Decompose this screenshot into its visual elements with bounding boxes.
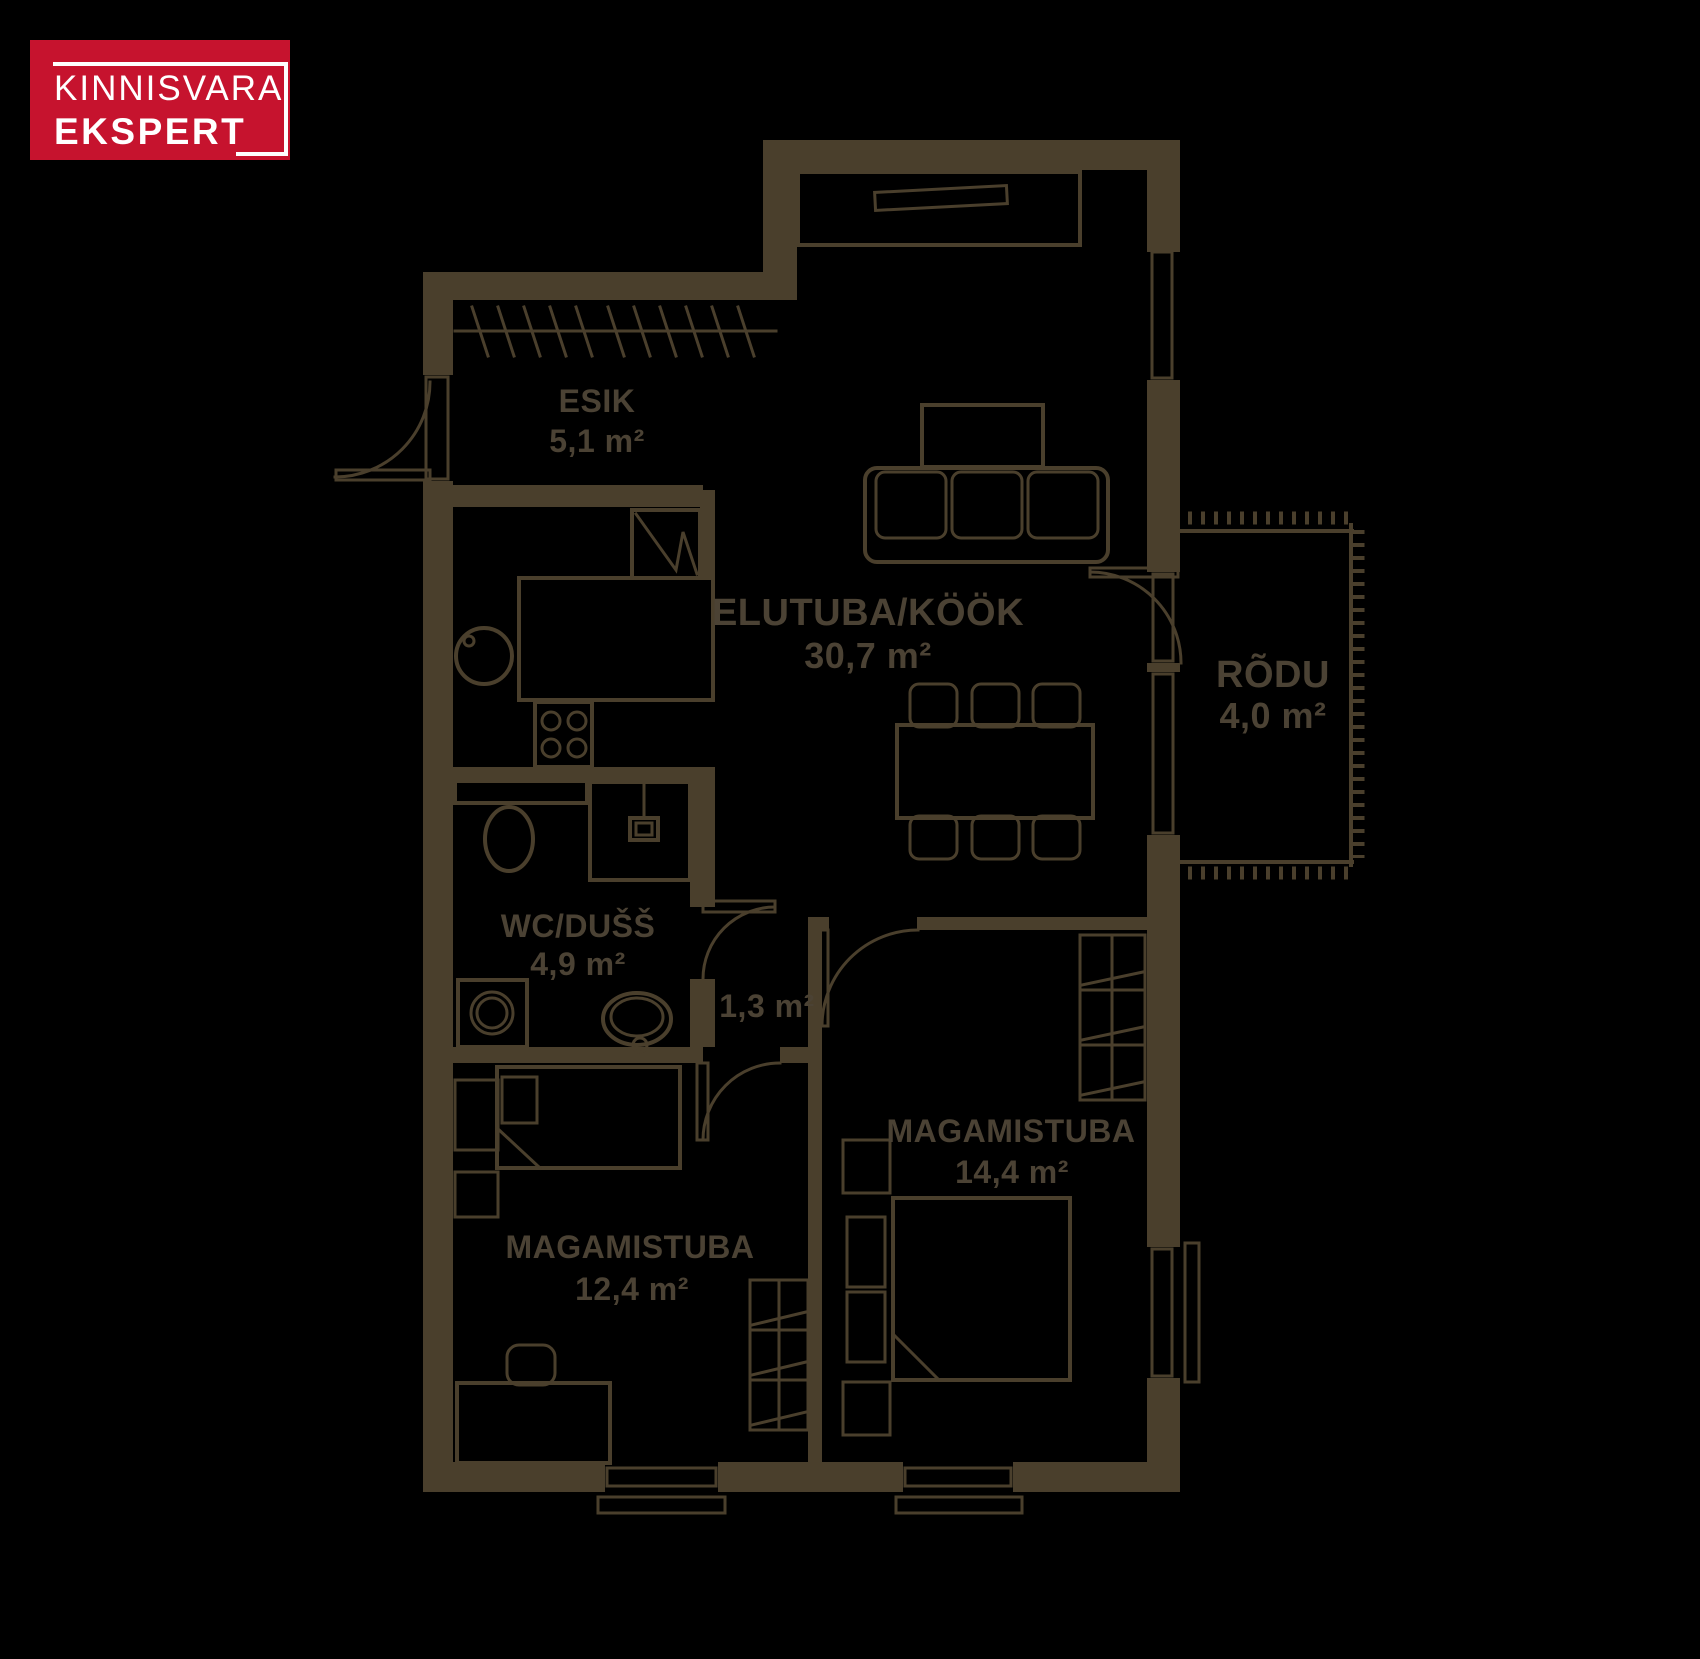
room-name-esik: ESIK xyxy=(559,383,636,419)
wall-living-bedroom1 xyxy=(917,917,1147,930)
room-area-elutuba: 30,7 m² xyxy=(804,635,932,676)
chair xyxy=(910,816,957,859)
chair xyxy=(972,816,1019,859)
logo-line2: EKSPERT xyxy=(54,111,246,152)
coffee-table xyxy=(922,405,1043,467)
wall-esik-kitchen xyxy=(423,485,703,507)
wall-wc-right-lower xyxy=(690,979,715,1047)
room-area-esik: 5,1 m² xyxy=(549,423,644,459)
logo-line1: KINNISVARA xyxy=(54,69,283,108)
window-bedroom1-bottom xyxy=(905,1468,1011,1486)
pillow xyxy=(502,1077,537,1123)
wall-top-living xyxy=(763,140,1177,170)
room-name-rodu: RÕDU xyxy=(1216,652,1330,696)
kitchen-counter xyxy=(519,578,713,700)
room-area-koridor: 1,3 m² xyxy=(719,988,814,1024)
bedroom1-door xyxy=(816,930,918,1026)
nightstand xyxy=(455,1080,498,1150)
stove-icon xyxy=(535,702,592,767)
bedroom2-door-arc xyxy=(703,1063,780,1140)
wc-door-arc xyxy=(703,907,775,979)
floorplan-drawing: KINNISVARA EKSPERT xyxy=(0,0,1700,1659)
dining-table xyxy=(897,725,1093,818)
wc-door xyxy=(703,901,775,979)
toilet-icon xyxy=(455,781,587,871)
wall-wc-right-upper xyxy=(690,783,715,907)
window-bedroom2-bottom xyxy=(607,1468,716,1486)
window-sill-bedroom2 xyxy=(598,1497,725,1513)
window-sill-bedroom1-bottom xyxy=(896,1497,1022,1513)
nightstand xyxy=(843,1382,890,1435)
window-living-right xyxy=(1152,252,1172,378)
sofa xyxy=(865,468,1108,562)
room-name-wc: WC/DUŠŠ xyxy=(501,908,656,944)
desk xyxy=(457,1345,610,1463)
bathroom-sink-icon xyxy=(603,993,671,1052)
wall-left-upper xyxy=(423,272,453,375)
dining-chairs xyxy=(910,684,1080,859)
balcony-door-arc xyxy=(1090,572,1181,663)
balcony-door xyxy=(1090,568,1181,833)
floorplan-page: KINNISVARA EKSPERT xyxy=(0,0,1700,1659)
nightstand xyxy=(843,1140,890,1193)
room-area-magamistuba2: 12,4 m² xyxy=(575,1271,689,1307)
wall-bottom-2 xyxy=(718,1462,903,1492)
chair xyxy=(972,684,1019,727)
balcony-door-glazing xyxy=(1153,674,1173,833)
bedroom1-door-arc xyxy=(822,930,918,1026)
wall-top-esik xyxy=(423,272,797,300)
chair xyxy=(910,684,957,727)
shower-icon xyxy=(590,770,690,880)
bedroom1-bed xyxy=(847,1198,1070,1380)
wall-wc-bedroom xyxy=(423,1047,703,1063)
wall-right-4 xyxy=(1147,1378,1180,1492)
brand-logo: KINNISVARA EKSPERT xyxy=(30,40,290,160)
washing-machine-icon xyxy=(458,980,527,1047)
bedroom1-wardrobe xyxy=(1080,935,1145,1100)
chair xyxy=(1033,816,1080,859)
wall-right-3 xyxy=(1147,835,1180,1247)
bedroom2-wardrobe xyxy=(750,1280,808,1430)
dresser xyxy=(455,1172,498,1217)
room-area-magamistuba1: 14,4 m² xyxy=(955,1154,1069,1190)
room-area-rodu: 4,0 m² xyxy=(1219,695,1326,736)
entry-door-arc xyxy=(335,382,430,477)
entry-door xyxy=(335,377,448,480)
pillow xyxy=(847,1217,885,1287)
wall-left-lower xyxy=(423,481,453,1462)
window-bedroom1-right xyxy=(1152,1249,1172,1376)
windows xyxy=(598,252,1199,1513)
chair xyxy=(1033,684,1080,727)
wall-bottom-1 xyxy=(423,1462,605,1492)
tv-icon xyxy=(875,186,1008,211)
room-name-elutuba: ELUTUBA/KÖÖK xyxy=(712,591,1024,634)
wall-right-divider xyxy=(1147,663,1180,672)
wall-right-1 xyxy=(1147,140,1180,252)
coat-rack xyxy=(455,307,776,356)
room-name-magamistuba2: MAGAMISTUBA xyxy=(505,1229,754,1265)
kitchen-sink-icon xyxy=(456,628,512,684)
wall-kitchen-panel xyxy=(700,490,715,578)
bedroom2-bed xyxy=(497,1067,680,1168)
pillow xyxy=(847,1292,885,1362)
window-sill-bedroom1 xyxy=(1185,1243,1199,1382)
desk-chair xyxy=(507,1345,555,1385)
fridge-icon xyxy=(632,510,700,578)
wall-right-2 xyxy=(1147,380,1180,572)
room-area-wc: 4,9 m² xyxy=(530,946,625,982)
bedroom2-door xyxy=(697,1063,780,1140)
room-name-magamistuba1: MAGAMISTUBA xyxy=(886,1113,1135,1149)
furniture xyxy=(455,172,1145,1463)
